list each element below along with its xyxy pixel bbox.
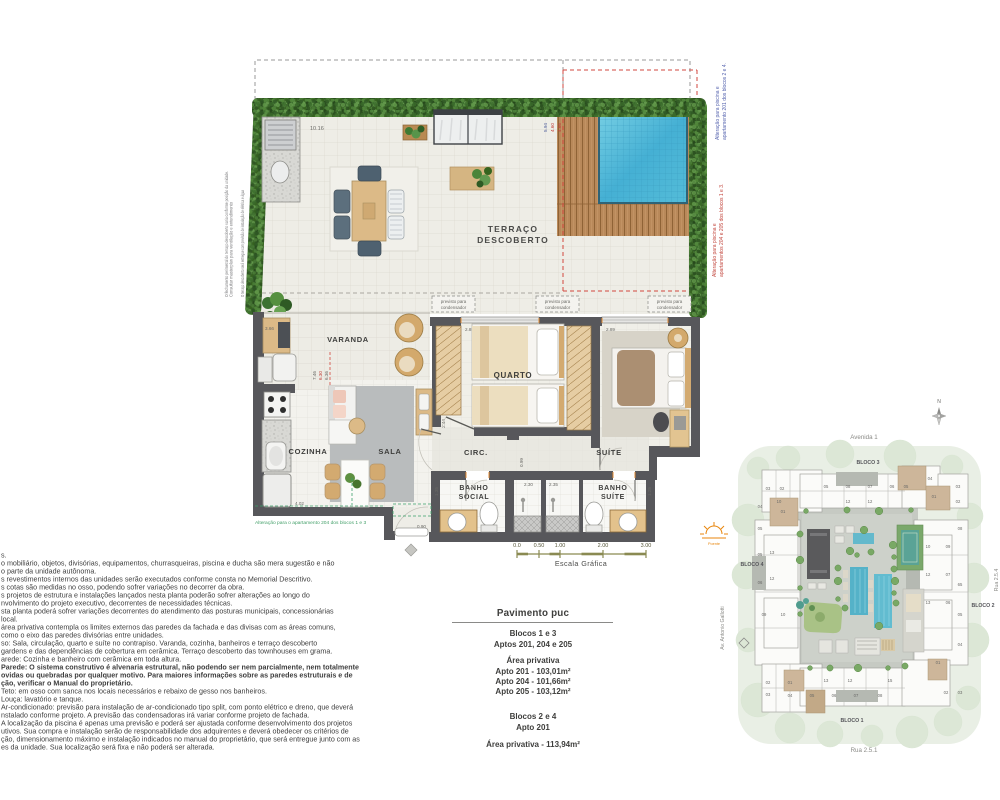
- svg-text:12: 12: [846, 499, 851, 504]
- svg-text:Blocos 1 e 3: Blocos 1 e 3: [510, 629, 557, 638]
- svg-text:02: 02: [956, 499, 961, 504]
- svg-text:condensador: condensador: [441, 305, 467, 310]
- svg-text:01: 01: [932, 494, 937, 499]
- svg-text:condensador: condensador: [545, 305, 571, 310]
- svg-text:10: 10: [926, 544, 931, 549]
- svg-text:04: 04: [958, 642, 963, 647]
- svg-text:15: 15: [888, 678, 893, 683]
- svg-text:Av. Antonio Gallotti: Av. Antonio Gallotti: [720, 606, 726, 649]
- svg-text:Blocos 2 e 4: Blocos 2 e 4: [510, 712, 557, 721]
- svg-text:05: 05: [758, 552, 763, 557]
- svg-text:A localização da piscina é ape: A localização da piscina é apenas uma pr…: [1, 720, 353, 728]
- svg-text:01: 01: [781, 509, 786, 514]
- svg-text:08: 08: [878, 693, 883, 698]
- svg-text:apartamentos 204 e 205 dos blo: apartamentos 204 e 205 dos blocos 1 e 3.: [719, 184, 725, 277]
- svg-text:12: 12: [848, 678, 853, 683]
- svg-text:3.66: 3.66: [265, 326, 274, 331]
- svg-text:CIRC.: CIRC.: [464, 448, 488, 457]
- svg-text:Alteração para piscina e: Alteração para piscina e: [715, 86, 721, 140]
- svg-text:Alteração para o apartamento 2: Alteração para o apartamento 204 dos blo…: [255, 520, 366, 526]
- svg-text:6.36: 6.36: [324, 371, 329, 380]
- svg-text:área privativa contempla os li: área privativa contempla os limites exte…: [1, 624, 336, 632]
- svg-text:Teto: em osso com sanca nos lo: Teto: em osso com sanca nos locais neces…: [1, 688, 267, 696]
- svg-text:07: 07: [946, 572, 951, 577]
- svg-text:N: N: [937, 399, 941, 405]
- svg-text:condensador: condensador: [657, 305, 683, 310]
- svg-text:so: Sala, circulação, quarto e: so: Sala, circulação, quarto e suíte no …: [1, 640, 317, 648]
- svg-text:VARANDA: VARANDA: [327, 335, 369, 344]
- svg-text:s revestimentos internos das u: s revestimentos internos das unidades se…: [1, 576, 313, 584]
- svg-text:BANHO: BANHO: [459, 485, 488, 492]
- svg-text:Ar-condicionado: previsão para: Ar-condicionado: previsão para instalaçã…: [1, 704, 353, 712]
- svg-text:s cotas são medidas no osso, p: s cotas são medidas no osso, podendo sof…: [1, 584, 244, 592]
- svg-text:2.30: 2.30: [524, 482, 533, 487]
- svg-text:06: 06: [832, 693, 837, 698]
- svg-text:Alteração para piscina e: Alteração para piscina e: [712, 223, 718, 277]
- svg-text:TERRAÇO: TERRAÇO: [488, 224, 538, 234]
- svg-text:previsto para: previsto para: [657, 299, 683, 304]
- svg-text:05: 05: [904, 484, 909, 489]
- svg-text:Pavimento puc: Pavimento puc: [497, 608, 570, 619]
- svg-text:04: 04: [928, 476, 933, 481]
- svg-text:BANHO: BANHO: [598, 485, 627, 492]
- svg-text:02: 02: [766, 680, 771, 685]
- svg-text:4.66: 4.66: [557, 123, 562, 132]
- svg-text:Apto 205 - 103,12m²: Apto 205 - 103,12m²: [495, 687, 570, 696]
- svg-text:03: 03: [766, 692, 771, 697]
- svg-text:o parte da unidade autônoma.: o parte da unidade autônoma.: [1, 568, 96, 576]
- svg-text:Consultar masterplan para vent: Consultar masterplan para ventilação e e…: [229, 201, 234, 297]
- svg-text:Área privativa - 113,94m²: Área privativa - 113,94m²: [486, 740, 580, 749]
- svg-text:0.90: 0.90: [417, 524, 426, 529]
- svg-text:nvolvimento do projeto executi: nvolvimento do projeto executivo, decorr…: [1, 600, 232, 608]
- svg-text:Apto 201: Apto 201: [516, 723, 550, 732]
- svg-text:01: 01: [936, 660, 941, 665]
- svg-text:03: 03: [766, 486, 771, 491]
- svg-text:previsto para: previsto para: [545, 299, 571, 304]
- svg-text:05: 05: [824, 484, 829, 489]
- svg-text:ção, verificar o Manual do pro: ção, verificar o Manual do proprietário.: [1, 680, 133, 688]
- svg-text:COZINHA: COZINHA: [288, 447, 327, 456]
- svg-text:s projetos de estrutura e inst: s projetos de estrutura e instalações la…: [1, 592, 310, 600]
- svg-text:nstalado conforme projeto. A p: nstalado conforme projeto. A previsão da…: [1, 712, 309, 720]
- svg-text:65: 65: [958, 582, 963, 587]
- svg-text:4.02: 4.02: [295, 501, 304, 506]
- svg-text:08: 08: [846, 484, 851, 489]
- svg-text:06: 06: [946, 600, 951, 605]
- svg-text:ção, dimensionamento máximo e: ção, dimensionamento máximo e instalação…: [1, 736, 360, 744]
- svg-text:4.60: 4.60: [550, 123, 555, 132]
- svg-text:utivos. Sua compra e instalaçã: utivos. Sua compra e instalação serão de…: [1, 728, 349, 736]
- svg-text:10: 10: [777, 499, 782, 504]
- svg-text:Área privativa: Área privativa: [507, 656, 560, 665]
- svg-text:12: 12: [868, 499, 873, 504]
- svg-text:Poente: Poente: [708, 542, 720, 546]
- svg-text:7.46: 7.46: [312, 371, 317, 380]
- svg-text:10.16: 10.16: [310, 126, 324, 132]
- svg-text:arede: Cozinha e banheiro com: arede: Cozinha e banheiro com cerâmica e…: [1, 656, 181, 664]
- svg-text:O terraço descoberto será entr: O terraço descoberto será entregue com p…: [240, 190, 245, 297]
- svg-text:s.: s.: [1, 552, 7, 560]
- svg-text:Apto 204 - 101,66m²: Apto 204 - 101,66m²: [495, 677, 570, 686]
- svg-text:10: 10: [781, 612, 786, 617]
- svg-text:1.35: 1.35: [434, 487, 439, 496]
- svg-text:Rua 2.5.4: Rua 2.5.4: [994, 569, 1000, 592]
- svg-text:SOCIAL: SOCIAL: [459, 494, 490, 501]
- svg-text:09: 09: [762, 612, 767, 617]
- svg-text:06: 06: [758, 580, 763, 585]
- svg-text:12: 12: [926, 572, 931, 577]
- svg-text:Apto 201 - 103,01m²: Apto 201 - 103,01m²: [495, 667, 570, 676]
- svg-text:13: 13: [770, 550, 775, 555]
- svg-text:local.: local.: [1, 616, 18, 624]
- svg-text:QUARTO: QUARTO: [494, 371, 533, 380]
- svg-text:BLOCO 1: BLOCO 1: [840, 718, 863, 724]
- svg-text:13: 13: [926, 600, 931, 605]
- svg-text:2.00: 2.00: [598, 543, 609, 549]
- svg-text:SUÍTE: SUÍTE: [601, 492, 625, 501]
- svg-text:BLOCO 2: BLOCO 2: [971, 603, 994, 609]
- svg-text:04: 04: [788, 693, 793, 698]
- svg-text:07: 07: [854, 693, 859, 698]
- svg-text:gardens e das dependências de: gardens e das dependências de cobertura …: [1, 648, 332, 656]
- svg-text:SALA: SALA: [378, 447, 401, 456]
- svg-text:como o eixo das paredes divisó: como o eixo das paredes divisórias entre…: [1, 632, 164, 640]
- svg-text:BLOCO 4: BLOCO 4: [740, 562, 763, 568]
- svg-text:05: 05: [758, 526, 763, 531]
- svg-text:sta planta poderá sofrer varia: sta planta poderá sofrer variações decor…: [1, 608, 334, 616]
- svg-text:08: 08: [958, 526, 963, 531]
- svg-text:02: 02: [780, 486, 785, 491]
- svg-text:05: 05: [958, 612, 963, 617]
- svg-text:DESCOBERTO: DESCOBERTO: [477, 235, 549, 245]
- svg-text:5.94: 5.94: [543, 123, 548, 132]
- svg-text:ovidas ou quebradas por qualqu: ovidas ou quebradas por qualquer motivo.…: [1, 672, 353, 680]
- svg-text:13: 13: [824, 678, 829, 683]
- svg-text:apartamento 201 dos blocos 2 e: apartamento 201 dos blocos 2 e 4.: [722, 63, 728, 140]
- svg-text:0.99: 0.99: [519, 458, 524, 467]
- svg-text:Rua 2.5.1: Rua 2.5.1: [851, 747, 878, 754]
- svg-text:01: 01: [788, 680, 793, 685]
- svg-text:03: 03: [956, 484, 961, 489]
- svg-text:2.89: 2.89: [606, 327, 615, 332]
- svg-text:Aptos 201, 204 e 205: Aptos 201, 204 e 205: [494, 640, 573, 649]
- svg-text:SUÍTE: SUÍTE: [596, 448, 622, 457]
- svg-text:Louça: lavatório e tanque.: Louça: lavatório e tanque.: [1, 696, 83, 704]
- svg-text:03: 03: [958, 690, 963, 695]
- svg-text:Parede: O sistema construtivo: Parede: O sistema construtivo é alvenari…: [1, 664, 359, 672]
- svg-text:previsto para: previsto para: [441, 299, 467, 304]
- svg-text:0.0: 0.0: [513, 543, 521, 549]
- svg-text:Avenida 1: Avenida 1: [850, 434, 878, 441]
- svg-text:1.25: 1.25: [647, 487, 652, 496]
- svg-text:0.50: 0.50: [534, 543, 545, 549]
- svg-text:04: 04: [758, 504, 763, 509]
- svg-text:2.35: 2.35: [549, 482, 558, 487]
- svg-text:BLOCO 3: BLOCO 3: [856, 460, 879, 466]
- svg-text:o mobiliário, objetos, divisór: o mobiliário, objetos, divisórias, equip…: [1, 560, 334, 568]
- svg-text:09: 09: [946, 544, 951, 549]
- svg-text:1.00: 1.00: [555, 543, 566, 549]
- svg-text:12: 12: [770, 576, 775, 581]
- svg-text:es da unidade. Sua localização: es da unidade. Sua localização será fixa…: [1, 744, 215, 752]
- svg-text:Escala Gráfica: Escala Gráfica: [555, 559, 607, 568]
- svg-text:6.30: 6.30: [318, 371, 323, 380]
- svg-text:07: 07: [868, 484, 873, 489]
- svg-text:3.00: 3.00: [641, 543, 652, 549]
- svg-text:02: 02: [944, 690, 949, 695]
- svg-text:05: 05: [810, 693, 815, 698]
- svg-text:06: 06: [890, 484, 895, 489]
